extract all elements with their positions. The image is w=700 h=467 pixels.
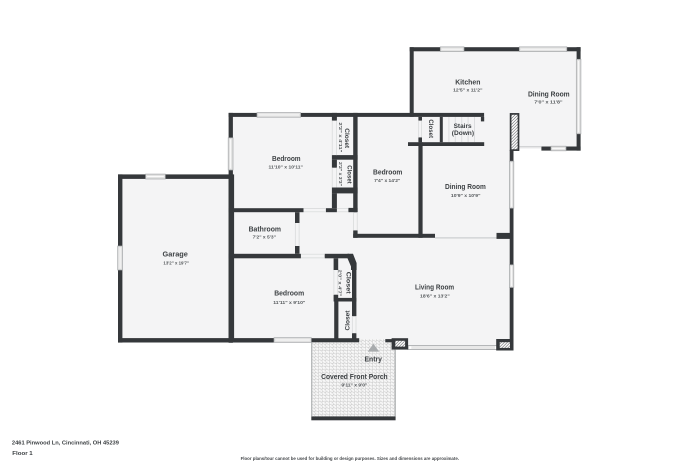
svg-text:Dining Room: Dining Room <box>445 184 486 191</box>
svg-text:Bathroom: Bathroom <box>249 227 281 234</box>
svg-text:7'0" x 11'8": 7'0" x 11'8" <box>534 100 562 105</box>
svg-text:2'2" x 4'11": 2'2" x 4'11" <box>338 122 343 152</box>
svg-text:2'0" x 4'7": 2'0" x 4'7" <box>338 270 343 297</box>
svg-text:2461 Pinwood Ln, Cincinnati, O: 2461 Pinwood Ln, Cincinnati, OH 45239 <box>12 441 120 447</box>
svg-text:13'2" x 19'7": 13'2" x 19'7" <box>163 261 189 266</box>
svg-text:Bedroom: Bedroom <box>373 170 402 177</box>
svg-text:Closet: Closet <box>344 272 351 295</box>
svg-text:Covered Front Porch: Covered Front Porch <box>321 374 388 381</box>
svg-text:Kitchen: Kitchen <box>455 79 480 86</box>
svg-text:Closet: Closet <box>427 119 434 138</box>
svg-text:Closet: Closet <box>345 310 352 331</box>
svg-text:18'6" x 13'2": 18'6" x 13'2" <box>420 293 450 298</box>
svg-text:9'11" x 9'0": 9'11" x 9'0" <box>341 383 367 388</box>
svg-text:7'2" x 5'3": 7'2" x 5'3" <box>253 235 276 240</box>
svg-text:Bedroom: Bedroom <box>274 291 304 298</box>
svg-text:(Down): (Down) <box>452 130 474 137</box>
svg-text:Bedroom: Bedroom <box>272 156 301 163</box>
svg-text:Closet: Closet <box>345 165 352 184</box>
svg-text:10'9" x 10'9": 10'9" x 10'9" <box>451 193 481 198</box>
svg-text:Stairs: Stairs <box>454 123 472 130</box>
svg-text:Dining Room: Dining Room <box>528 92 570 99</box>
svg-text:Floor plans/tour cannot be use: Floor plans/tour cannot be used for buil… <box>241 456 459 461</box>
svg-text:11'11" x 9'10": 11'11" x 9'10" <box>273 300 305 305</box>
svg-text:Entry: Entry <box>365 357 382 364</box>
svg-text:2'2" x 3'3": 2'2" x 3'3" <box>338 162 343 186</box>
svg-text:Floor 1: Floor 1 <box>12 451 33 457</box>
svg-text:12'5" x 11'2": 12'5" x 11'2" <box>453 87 482 92</box>
svg-text:11'10" x 10'11": 11'10" x 10'11" <box>269 165 303 170</box>
svg-text:7'4" x 14'2": 7'4" x 14'2" <box>374 178 400 183</box>
svg-text:Garage: Garage <box>163 251 188 258</box>
svg-text:Living Room: Living Room <box>415 284 454 291</box>
svg-text:Closet: Closet <box>343 128 350 149</box>
